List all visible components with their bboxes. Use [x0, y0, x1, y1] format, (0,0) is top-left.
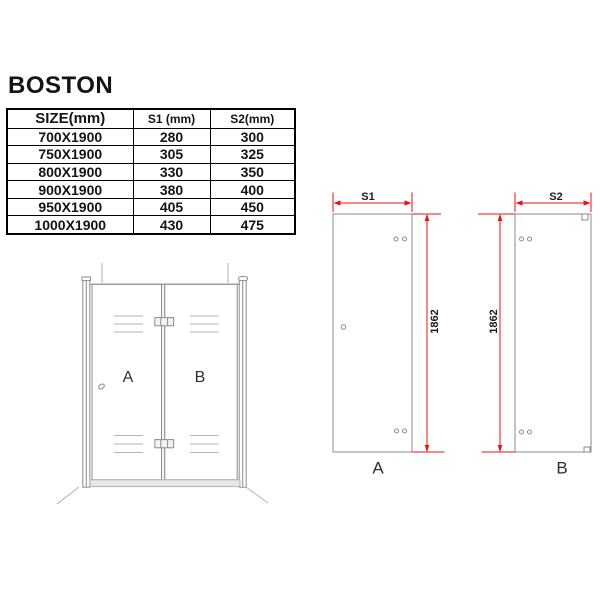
- panel-b-height-dimension: 1862: [478, 214, 515, 452]
- center-hinge-bar: [162, 284, 165, 485]
- mounting-hole: [403, 429, 407, 433]
- right-profile-cap: [239, 277, 248, 281]
- panel-a-outline: [333, 214, 412, 452]
- front-panel-a-label: A: [123, 369, 134, 386]
- left-profile-cap: [82, 277, 91, 281]
- panel-b-label: B: [556, 459, 567, 478]
- panel-b-technical-view: S2 1862 B: [478, 191, 591, 478]
- mounting-hole: [528, 237, 532, 241]
- spec-sheet: BOSTON SIZE(mm) S1 (mm) S2(mm) 700X19002…: [0, 0, 600, 600]
- panel-a-label: A: [372, 459, 384, 478]
- mounting-hole: [520, 237, 524, 241]
- panel-b-height-label: 1862: [488, 309, 500, 333]
- mounting-hole: [403, 237, 407, 241]
- mounting-hole: [394, 237, 398, 241]
- bottom-sill: [90, 480, 240, 487]
- mounting-hole: [520, 430, 524, 434]
- door-hinge-icon: [155, 318, 174, 326]
- panel-a-height-dimension: 1862: [412, 214, 445, 452]
- s1-dimension-label: S1: [361, 191, 374, 203]
- panel-a-technical-view: S1 1862 A: [333, 191, 445, 478]
- door-handle-icon: [98, 383, 105, 390]
- front-panel-b-label: B: [195, 369, 206, 386]
- panel-a-height-label: 1862: [429, 309, 441, 333]
- mounting-hole: [528, 430, 532, 434]
- mounting-hole: [395, 429, 399, 433]
- s1-dimension: S1: [333, 191, 412, 212]
- s2-dimension: S2: [515, 191, 591, 212]
- floor-line: [57, 487, 79, 504]
- floor-line: [246, 487, 268, 503]
- handle-hole: [341, 325, 346, 330]
- front-view-drawing: A B: [57, 263, 268, 504]
- door-hinge-icon: [155, 440, 174, 448]
- s2-dimension-label: S2: [549, 191, 562, 203]
- technical-drawing: A B S1: [0, 0, 600, 600]
- panel-b-outline: [515, 214, 591, 452]
